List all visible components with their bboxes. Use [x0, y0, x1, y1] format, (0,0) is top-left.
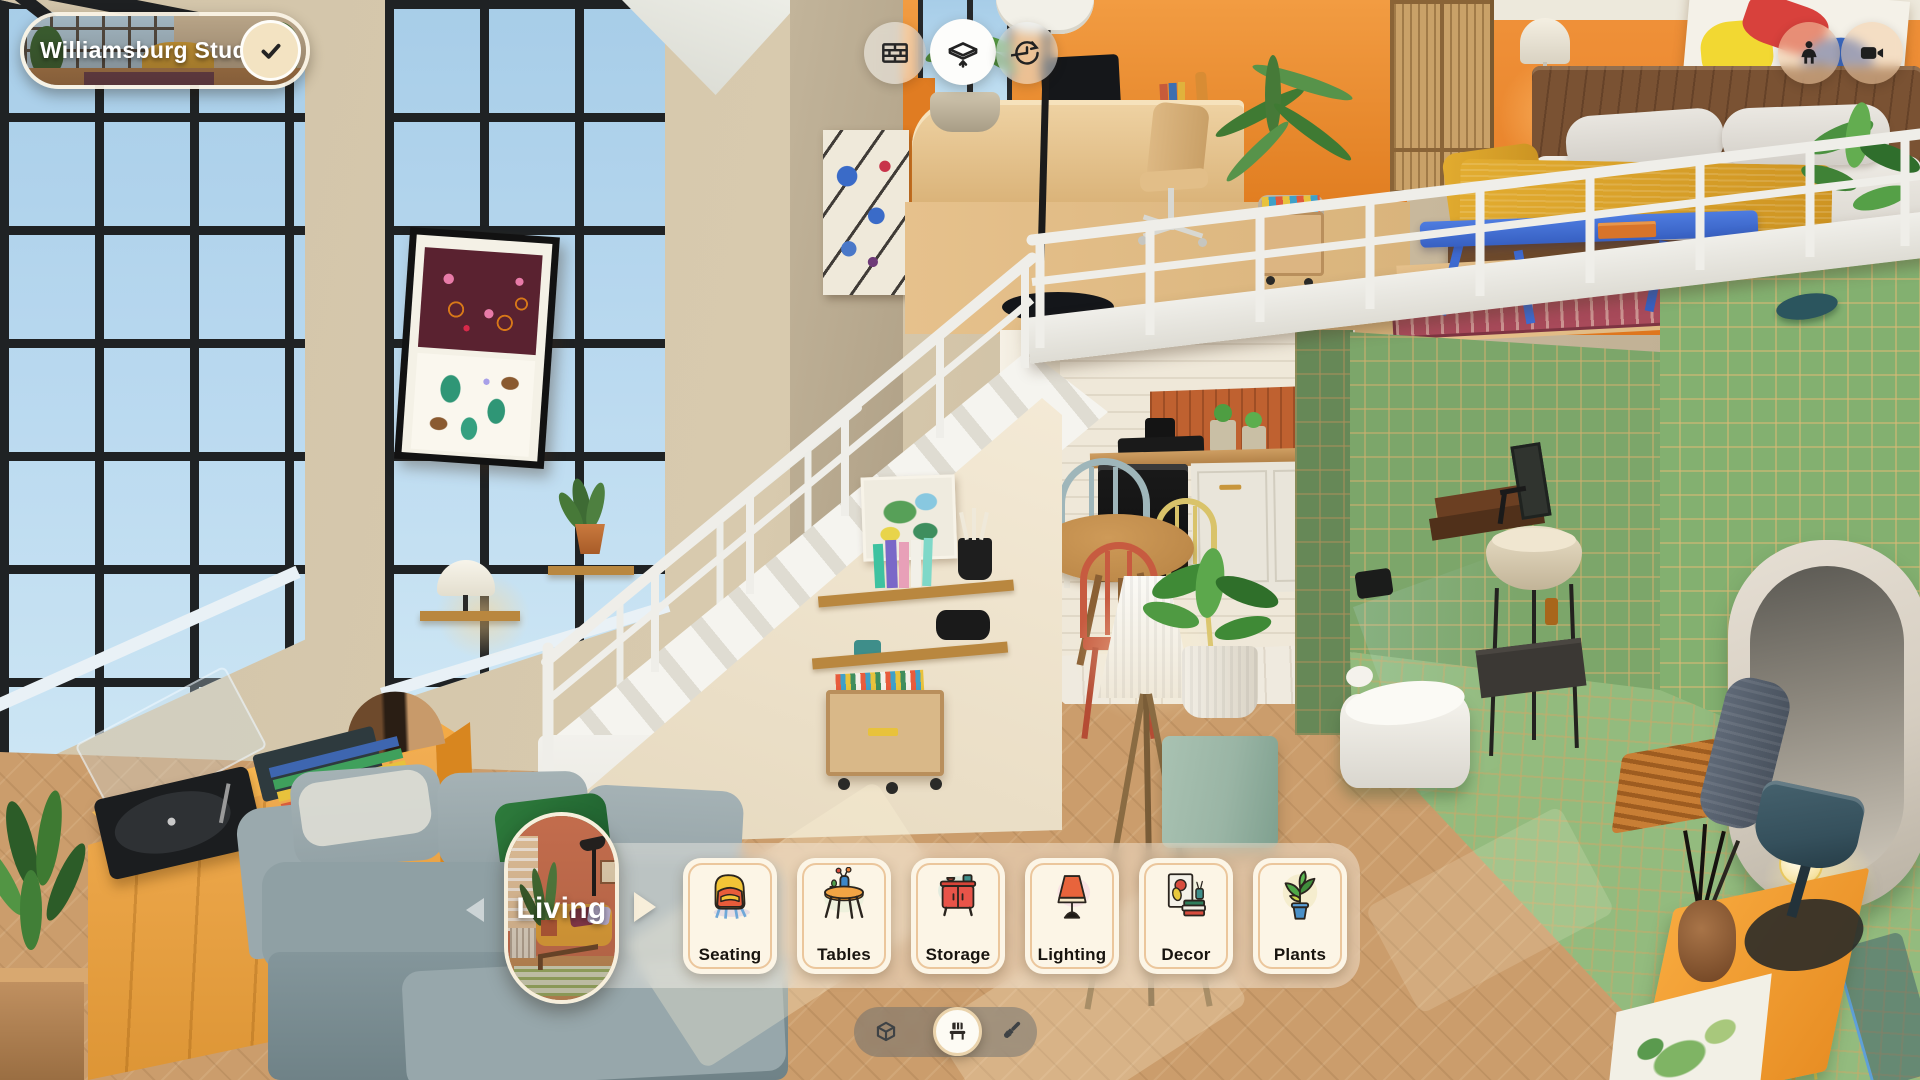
potted-plant-on-cube[interactable] — [1130, 538, 1290, 698]
vinyl-folder — [252, 726, 384, 803]
shelf-book — [873, 544, 885, 588]
check-icon — [256, 36, 286, 66]
video-camera-icon — [1856, 37, 1888, 69]
window-left-sill — [0, 566, 301, 712]
vinyl-record — [273, 748, 403, 790]
dining-table[interactable] — [1038, 514, 1194, 582]
understair-shelf[interactable] — [812, 641, 1008, 669]
vinyl-record — [277, 760, 407, 802]
desk-counter[interactable] — [912, 100, 1244, 210]
dining-chair-red[interactable] — [1080, 542, 1158, 638]
watercolor-painting[interactable] — [1604, 973, 1771, 1080]
record-crate-books — [1262, 195, 1321, 219]
camera-view-button[interactable] — [1841, 22, 1903, 84]
shelf-book — [885, 540, 898, 588]
bed-bench[interactable] — [1420, 210, 1759, 248]
bath-ledge-shelf[interactable] — [1435, 482, 1542, 524]
clock-history-icon — [1011, 37, 1043, 69]
floor-tool-button[interactable] — [930, 19, 996, 85]
project-title: Williamsburg Studio — [40, 16, 268, 85]
staircase[interactable] — [540, 345, 1115, 820]
utensil-pot — [958, 538, 992, 580]
bed-pillow — [1721, 103, 1891, 169]
arch-sculpture[interactable] — [339, 683, 446, 764]
window-left[interactable] — [0, 0, 305, 780]
bed-blanket-drape — [1441, 142, 1551, 260]
dining-chair-white[interactable] — [1006, 524, 1070, 588]
brush-vase[interactable] — [1678, 900, 1736, 982]
record-player[interactable] — [93, 765, 265, 880]
next-room-button[interactable] — [634, 892, 656, 922]
bed-pillow — [1564, 107, 1726, 176]
bath-towel[interactable] — [1695, 672, 1795, 834]
mezzanine-fascia — [1025, 211, 1920, 364]
toilet-paper — [1345, 664, 1375, 689]
turntable-lid — [74, 665, 267, 826]
toilet[interactable] — [1340, 694, 1470, 788]
wall-art-botanical[interactable] — [394, 227, 560, 469]
category-card-plants[interactable]: Plants — [1253, 858, 1347, 974]
bathroom-floor — [1340, 640, 1920, 1080]
oven[interactable] — [1098, 464, 1188, 582]
desk-book — [1178, 82, 1185, 108]
wall-shelf[interactable] — [548, 566, 634, 575]
furnish-mode-button[interactable] — [933, 1007, 982, 1056]
soap-bottle — [1545, 598, 1558, 625]
bed-mattress[interactable] — [1532, 156, 1920, 258]
mezzanine-floor — [905, 202, 1410, 334]
gas-stove[interactable] — [1118, 436, 1205, 459]
herb-pot[interactable] — [1242, 426, 1266, 456]
vinyl-record — [281, 772, 411, 814]
history-tool-button[interactable] — [996, 22, 1058, 84]
vinyl-record — [269, 736, 399, 778]
wall-shelf[interactable] — [420, 611, 520, 621]
app-root: Williamsburg Studio — [0, 0, 1920, 1080]
bed-blanket[interactable] — [1459, 159, 1832, 237]
shelf-book — [899, 542, 909, 588]
category-card-decor[interactable]: Decor — [1139, 858, 1233, 974]
palm-plant[interactable] — [1210, 55, 1360, 265]
room-label: Living — [508, 892, 615, 926]
lamp-cord — [1797, 940, 1817, 1079]
category-card-tables[interactable]: Tables — [797, 858, 891, 974]
towel-hook — [1774, 289, 1839, 323]
bedroom-floor — [1396, 238, 1920, 343]
kitchen-pillar — [1000, 330, 1060, 675]
room-selector[interactable]: Living — [504, 812, 619, 1004]
desk-book — [1159, 84, 1168, 108]
teal-vase — [854, 640, 881, 662]
shelf-book — [922, 538, 933, 586]
corner-plant[interactable] — [0, 790, 120, 1080]
stair-pillar — [790, 0, 903, 560]
paint-mode-button[interactable] — [996, 1016, 1026, 1046]
bench-icon — [944, 1018, 971, 1045]
kitchen-wall — [1055, 330, 1355, 668]
bedside-plant[interactable] — [1796, 96, 1920, 341]
lamp-base-disc — [1739, 890, 1869, 980]
desk-chair[interactable] — [1146, 101, 1210, 186]
dutch-oven — [936, 610, 990, 640]
shelf-book — [911, 540, 921, 587]
person-view-button[interactable] — [1778, 22, 1840, 84]
bathroom-edge-wall — [1295, 330, 1353, 735]
bulb-glow — [1740, 806, 1900, 966]
floor-raise-icon — [946, 35, 980, 69]
category-card-seating[interactable]: Seating — [683, 858, 777, 974]
understair-painting[interactable] — [861, 474, 958, 561]
record-crate[interactable] — [826, 690, 944, 776]
understair-shelf[interactable] — [818, 579, 1014, 607]
dining-chair-yellow[interactable] — [1155, 498, 1217, 568]
sideboard[interactable] — [80, 745, 460, 1080]
bench-book — [1598, 221, 1657, 239]
kitchen-backsplash — [1150, 384, 1355, 453]
sideboard-top — [80, 700, 480, 850]
project-badge[interactable]: Williamsburg Studio — [20, 12, 310, 89]
pleated-floor-lamp[interactable] — [1098, 576, 1194, 698]
confirm-button[interactable] — [240, 20, 301, 81]
shelf-plant[interactable] — [556, 478, 626, 556]
bathroom-floor-lamp[interactable] — [1779, 842, 1823, 886]
wardrobe[interactable] — [1390, 0, 1494, 194]
orange-wall-sliver — [903, 78, 935, 288]
kitchen-floor — [1005, 628, 1355, 704]
skylight — [622, 0, 802, 95]
bathroom-back-wall — [1655, 218, 1920, 808]
paintbrush-icon — [996, 1016, 1026, 1046]
window-center-sill — [380, 600, 670, 699]
brick-wall-icon — [879, 37, 911, 69]
sun-patch — [1365, 805, 1616, 1014]
bath-mirror[interactable] — [1510, 442, 1551, 520]
wall-sconce[interactable] — [1520, 18, 1570, 64]
record-stack — [835, 670, 925, 707]
bathtub[interactable] — [1728, 540, 1920, 910]
cube-side-table[interactable] — [1162, 736, 1278, 848]
sink-shelf — [1475, 638, 1586, 699]
herb-pot[interactable] — [1210, 420, 1236, 452]
bedroom-rug[interactable] — [1391, 274, 1691, 340]
teal-table-lamp[interactable] — [1749, 778, 1867, 876]
build-mode-button[interactable] — [872, 1018, 900, 1046]
glass-panel — [1833, 931, 1920, 1080]
person-icon — [1793, 37, 1825, 69]
cube-icon — [872, 1018, 900, 1046]
understair-wall — [560, 390, 1070, 845]
bed-frame — [1448, 240, 1920, 282]
kettle[interactable] — [1145, 418, 1175, 442]
art-table[interactable] — [1631, 867, 1870, 1080]
sofa-throw — [296, 767, 434, 848]
window-center[interactable] — [385, 0, 665, 705]
category-card-storage[interactable]: Storage — [911, 858, 1005, 974]
shelf-lamp[interactable] — [437, 560, 495, 596]
sconce-glow — [1478, 36, 1628, 196]
kitchen-counter — [1090, 447, 1355, 469]
wall-tool-button[interactable] — [864, 22, 926, 84]
bathroom-left-wall — [1340, 328, 1670, 698]
rolling-crate[interactable] — [1258, 212, 1324, 276]
poster-abstract[interactable] — [823, 130, 909, 295]
bath-sink[interactable] — [1486, 526, 1582, 590]
kitchen-cabinets[interactable] — [1191, 461, 1355, 594]
category-card-lighting[interactable]: Lighting — [1025, 858, 1119, 974]
bedroom-wall-band — [1494, 0, 1920, 20]
flush-plate[interactable] — [1354, 568, 1393, 600]
prev-room-button[interactable] — [466, 898, 484, 922]
deer-figurine — [1195, 72, 1208, 103]
bed-headboard[interactable] — [1532, 66, 1920, 190]
desk-book — [1169, 83, 1178, 108]
dining-chair-blue[interactable] — [1058, 458, 1150, 534]
lamp-glow — [1044, 560, 1254, 750]
bath-mat[interactable] — [1611, 734, 1740, 834]
lamp-glow — [418, 555, 548, 675]
